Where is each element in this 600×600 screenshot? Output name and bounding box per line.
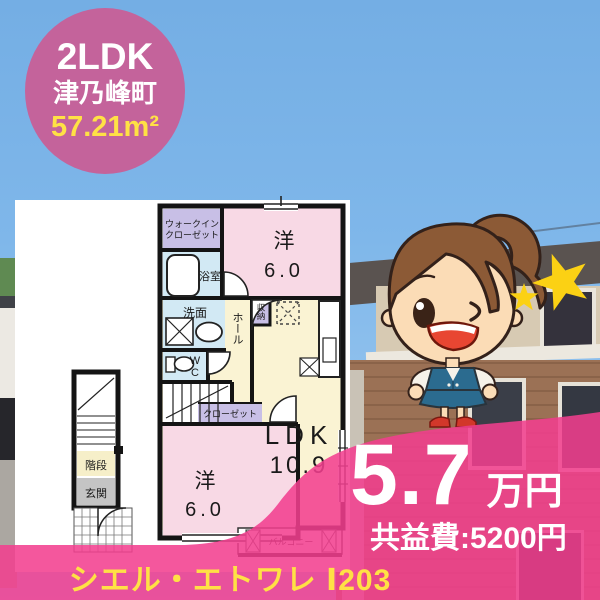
rental-promo-image: { "badge": { "layout_type": "2LDK", "tow… [0,0,600,600]
entrance-label: 玄関 [85,486,107,500]
eye-highlight [416,302,424,310]
toilet-tank [166,357,175,372]
rent-price: 5.7 万円 [350,432,563,518]
layout-type-label: 2LDK [57,38,154,77]
scene: ウォークイン クローゼット 浴室 洋 6.0 洗面 WC ホール 収納 LDK … [0,0,600,600]
button [455,383,458,386]
ldk-label: LDK [265,420,334,450]
bedroom-bottom-size: 6.0 [185,499,225,521]
area-label: 57.21m² [51,112,159,144]
open-eye [413,298,435,328]
door-nub [114,446,123,454]
walkin-label-line2: クローゼット [165,229,219,240]
button [447,383,450,386]
bathtub [167,255,199,296]
bedroom-top-size: 6.0 [264,260,304,282]
neck [446,358,459,368]
rent-unit: 万円 [487,460,563,515]
fist [483,385,498,400]
shoe [430,417,450,427]
storage-label: 収納 [256,302,266,321]
sink [196,323,222,342]
skirt [420,390,486,408]
stairs-label: 階段 [85,458,107,472]
hall-label: ホール [231,312,244,345]
town-label: 津乃峰町 [53,79,157,109]
property-name: シエル・エトワレ Ⅰ203 [40,555,420,599]
fist [409,385,424,400]
washroom-label: 洗面 [183,306,207,320]
rent-amount: 5.7 [350,432,473,518]
bedroom-bottom-label: 洋 [195,470,216,493]
walkin-label-line1: ウォークイン [165,219,219,229]
mascot-office-lady [382,215,546,427]
common-fee-label: 共益費:5200円 [370,513,567,557]
bedroom-top-label: 洋 [274,230,295,253]
kitchen-counter [319,301,340,377]
wc-label: WC [189,355,201,379]
info-badge: 2LDK 津乃峰町 57.21m² [25,8,185,174]
bath-label: 浴室 [199,269,221,283]
closet-label: クローゼット [203,408,257,419]
